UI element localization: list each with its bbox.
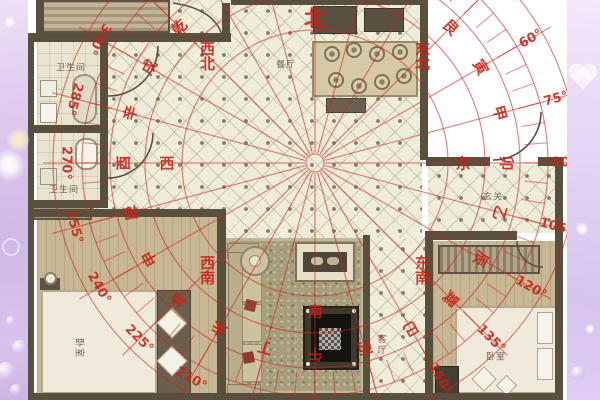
sparkle-icon bbox=[4, 16, 16, 28]
sparkle-icon bbox=[0, 148, 26, 182]
compass-degree-label: 75° bbox=[542, 88, 567, 109]
room-label: 卧室 bbox=[486, 350, 506, 363]
bubble-icon bbox=[571, 366, 585, 380]
wall bbox=[433, 231, 517, 240]
compass-mountain-label: 艮 bbox=[438, 15, 463, 40]
bathroom2-toilet bbox=[75, 138, 98, 170]
sparkle-icon bbox=[575, 222, 589, 236]
wall bbox=[426, 157, 490, 166]
lamp-shade bbox=[249, 255, 261, 267]
sparkle-icon bbox=[585, 324, 595, 334]
wall bbox=[231, 0, 420, 5]
plate-icon bbox=[346, 42, 362, 58]
kitchen-counter-block-2 bbox=[364, 8, 404, 32]
wall bbox=[555, 160, 563, 398]
wall bbox=[100, 41, 108, 208]
screenshot-frame: 北东北东东南南西南西西北艮寅甲卯乙辰巽巳丙午丁未坤申庚酉辛戌乾60°75°90°… bbox=[0, 0, 600, 400]
compass-degree-label: 60° bbox=[516, 26, 545, 51]
room-label: 餐厅 bbox=[276, 58, 296, 71]
wall bbox=[28, 36, 34, 398]
dining-bench bbox=[326, 98, 366, 113]
living-tile-strip bbox=[370, 238, 427, 394]
heart-icon bbox=[572, 67, 595, 90]
bedroom2-dresser bbox=[435, 366, 459, 394]
room-label: 玄关 bbox=[483, 190, 503, 203]
bedroom1-lamp bbox=[44, 272, 57, 285]
bathroom1-toilet bbox=[40, 103, 57, 123]
bathroom1-sink bbox=[40, 80, 57, 97]
fireplace-opening bbox=[303, 252, 347, 272]
tv-screen-pattern bbox=[319, 328, 341, 350]
wall bbox=[222, 3, 230, 42]
bubble-icon bbox=[12, 340, 27, 355]
plate-icon bbox=[328, 72, 344, 88]
sofa-back bbox=[228, 252, 243, 394]
bedroom1-headboard bbox=[157, 290, 191, 394]
left-purple-border bbox=[0, 0, 28, 400]
fireplace-log bbox=[327, 257, 339, 265]
swirl-icon bbox=[2, 238, 20, 256]
bubble-icon bbox=[0, 362, 16, 382]
tv-stand-knob bbox=[306, 309, 310, 313]
wall bbox=[28, 125, 108, 133]
wall bbox=[28, 200, 108, 208]
plate-icon bbox=[351, 78, 367, 94]
plate-icon bbox=[396, 68, 412, 84]
wall bbox=[28, 209, 226, 217]
bedroom2-wardrobe bbox=[438, 245, 540, 274]
plate-icon bbox=[374, 74, 390, 90]
wall bbox=[217, 216, 226, 398]
room-label: 卫生间 bbox=[56, 61, 86, 74]
bubble-icon bbox=[10, 384, 22, 396]
bubble-icon bbox=[6, 316, 16, 326]
wall bbox=[36, 0, 43, 36]
sofa-throw-pillow bbox=[242, 351, 255, 364]
bedroom2-pillow bbox=[537, 312, 553, 344]
compass-mountain-label: 甲 bbox=[488, 103, 512, 123]
room-label: 卧室 bbox=[74, 338, 87, 358]
wall bbox=[28, 33, 231, 42]
wall bbox=[363, 235, 370, 398]
tv-stand-knob bbox=[306, 362, 310, 366]
plate-icon bbox=[392, 44, 408, 60]
balcony-hatched-area bbox=[42, 0, 170, 33]
fireplace-log bbox=[311, 257, 323, 265]
plate-icon bbox=[369, 46, 385, 62]
tv-stand-knob bbox=[352, 362, 356, 366]
bathtub bbox=[72, 74, 97, 124]
plate-icon bbox=[324, 46, 340, 62]
wall bbox=[425, 231, 433, 398]
kitchen-counter-block-1 bbox=[313, 6, 357, 34]
bedroom2-pillow bbox=[537, 348, 553, 380]
bedroom1-bed bbox=[41, 290, 157, 394]
floorplan-photo: 北东北东东南南西南西西北艮寅甲卯乙辰巽巳丙午丁未坤申庚酉辛戌乾60°75°90°… bbox=[28, 0, 567, 400]
room-label: 卫生间 bbox=[49, 183, 79, 196]
compass-mountain-label: 寅 bbox=[468, 55, 494, 79]
tv-stand-knob bbox=[352, 309, 356, 313]
right-purple-border bbox=[567, 0, 600, 400]
wall bbox=[420, 0, 428, 160]
room-label: 客厅 bbox=[375, 334, 388, 356]
wall bbox=[28, 393, 563, 400]
